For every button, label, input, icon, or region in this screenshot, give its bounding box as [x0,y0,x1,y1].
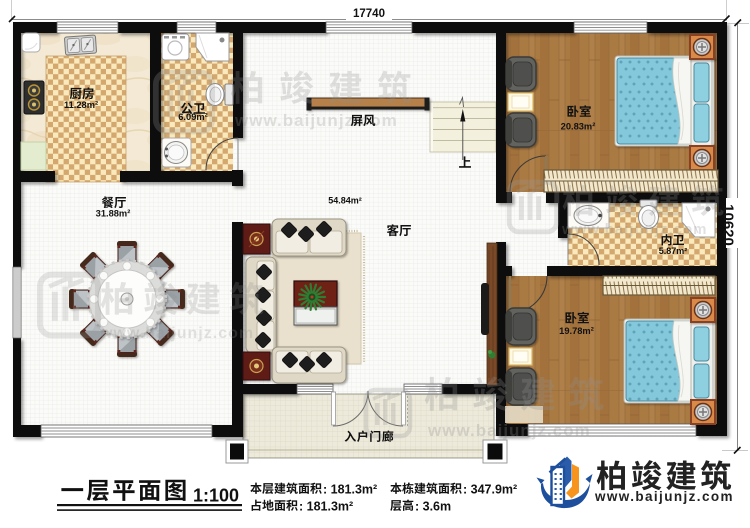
svg-text:31.88m²: 31.88m² [96,209,131,219]
svg-text:: 181.3m²: : 181.3m² [323,482,377,496]
svg-text:www.baijunjz.com: www.baijunjz.com [594,489,734,504]
svg-text:www.baijunjz.com: www.baijunjz.com [99,325,254,342]
svg-text:17740: 17740 [353,8,385,20]
svg-text:19.78m²: 19.78m² [559,326,594,336]
svg-text:54.84m²: 54.84m² [328,196,362,206]
svg-text:: 181.3m²: : 181.3m² [299,499,353,513]
svg-text:5.87m²: 5.87m² [659,246,688,256]
svg-text:www.baijunjz.com: www.baijunjz.com [427,421,591,440]
svg-text:1:100: 1:100 [193,486,239,506]
svg-text:20.83m²: 20.83m² [561,122,596,132]
svg-text:6.09m²: 6.09m² [178,112,207,122]
svg-text:: 3.6m: : 3.6m [415,499,451,513]
svg-text:www.baijunjz.com: www.baijunjz.com [561,221,707,238]
svg-text:: 347.9m²: : 347.9m² [463,482,517,496]
svg-text:11.28m²: 11.28m² [64,100,98,110]
svg-text:10620: 10620 [720,204,737,246]
